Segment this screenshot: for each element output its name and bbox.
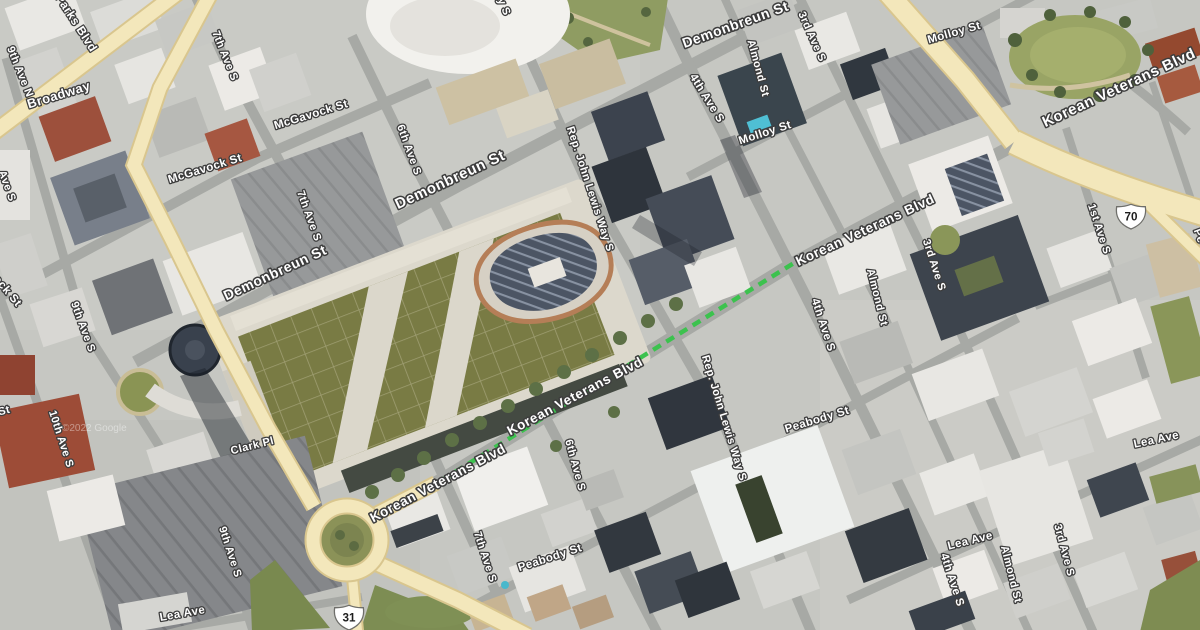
satellite-map[interactable]: 9th Ave N Parks Blvd Broadway 7th Ave S … (0, 0, 1200, 630)
satellite-canvas[interactable]: 9th Ave N Parks Blvd Broadway 7th Ave S … (0, 0, 1200, 630)
us-70-number: 70 (1124, 211, 1138, 224)
us-31-number: 31 (342, 612, 356, 625)
attribution-watermark: ©2022 Google (62, 423, 127, 434)
